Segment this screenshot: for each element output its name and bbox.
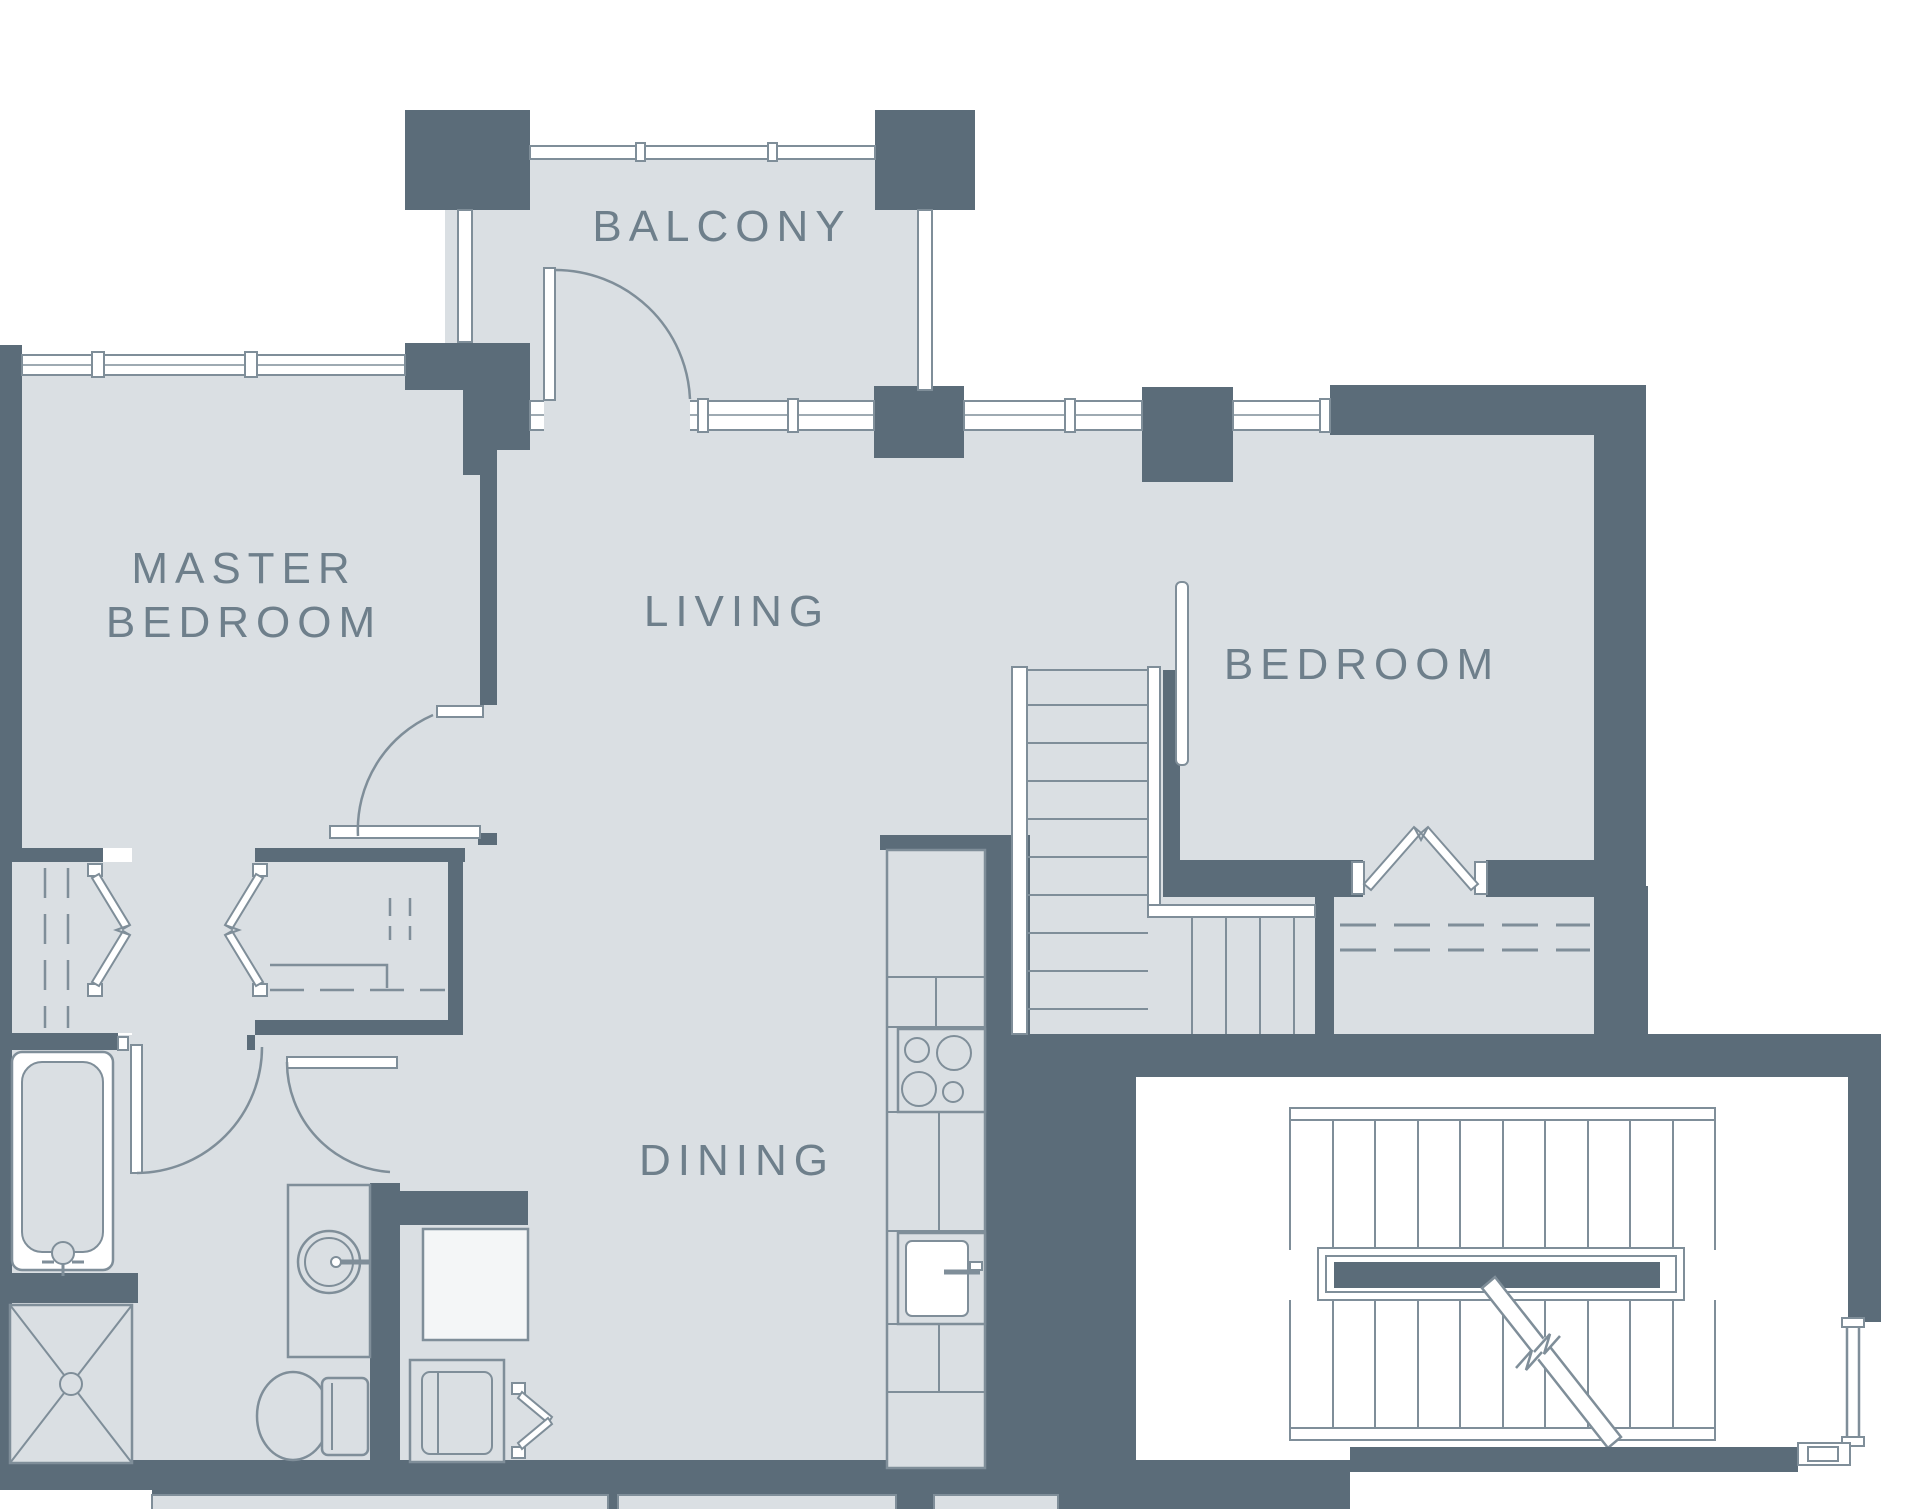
wall-under-closets [1030, 1034, 1881, 1077]
wall-walkin-top [255, 848, 465, 862]
master-track [330, 826, 480, 838]
column-master-corner [405, 343, 530, 390]
wall-bath-door-post-left [103, 1033, 118, 1050]
internal-stair-right-rail [1148, 667, 1160, 917]
balcony-door-opening [544, 399, 690, 432]
storage-box [423, 1229, 528, 1340]
kitchen [887, 850, 985, 1468]
stair-bottom-rail [1290, 1428, 1715, 1440]
window-mullion [1065, 399, 1075, 432]
wall-laundry-top [400, 1191, 528, 1225]
wall-linen-top [0, 848, 103, 862]
rail-mullion [636, 143, 645, 161]
rail-mullion [768, 143, 777, 161]
balcony-rail-left [458, 210, 472, 342]
wall-walkin-right [448, 848, 463, 1035]
internal-stair-lower-rail [1148, 905, 1315, 917]
common-stairwell [1136, 1077, 1848, 1448]
column-bedroom-top [1142, 387, 1233, 482]
door-leaf [544, 268, 555, 400]
master-bedroom-label-line1: MASTER [131, 544, 356, 593]
wall-step [463, 450, 480, 475]
dining-label: DINING [639, 1136, 835, 1185]
wall-master-left [0, 345, 22, 862]
vanity-sink [288, 1185, 370, 1357]
washer [410, 1360, 504, 1462]
window-mullion [92, 352, 104, 377]
column-living-top [874, 386, 964, 458]
wall-bedroom-bottom-left [1180, 860, 1363, 897]
walkin-closet-floor [267, 862, 448, 1020]
window-mullion [245, 352, 257, 377]
stair-guard-screen [1176, 582, 1188, 765]
window-mullion [1320, 399, 1330, 432]
column-master-corner-2 [463, 390, 530, 450]
exterior-gap [0, 1490, 152, 1509]
column-balcony-top-right [875, 110, 975, 210]
wall-wc-right [370, 1183, 400, 1463]
wall-stairwell-bottom [1350, 1447, 1798, 1472]
bathtub [12, 1052, 113, 1276]
toilet [257, 1372, 368, 1460]
door-jamb [118, 1037, 128, 1050]
door-leaf [131, 1045, 142, 1173]
cooktop [898, 1029, 985, 1112]
wall-linen-bottom [0, 1033, 103, 1050]
master-bedroom-label-line2: BEDROOM [106, 598, 382, 647]
window-mullion [698, 399, 708, 432]
wall-kitchen-top [880, 835, 1030, 850]
shower [10, 1305, 132, 1463]
floor-plan-drawing: BALCONY MASTER BEDROOM LIVING BEDROOM DI… [0, 0, 1920, 1509]
bedroom-label: BEDROOM [1224, 640, 1500, 689]
wall-bedroom-right [1594, 385, 1646, 886]
balcony-label: BALCONY [592, 202, 851, 251]
wall-tub-shower-divider [0, 1273, 138, 1303]
internal-stair-left-rail [1012, 667, 1027, 1034]
living-label: LIVING [644, 587, 830, 636]
window-mullion [788, 399, 798, 432]
column-balcony-top-left [405, 110, 530, 210]
wall-stairwell-right [1848, 1077, 1881, 1322]
kitchen-sink [898, 1233, 985, 1324]
door-leaf [287, 1057, 397, 1068]
wall-master-east [480, 450, 497, 705]
wall-walkin-bottom [255, 1020, 463, 1035]
wall-closet-left [1315, 897, 1334, 1034]
stair-top-rail [1290, 1108, 1715, 1120]
wall-bath-door-post-mid [247, 1035, 255, 1050]
kitchen-counter [887, 850, 985, 1468]
wall-bedroom-bottom-right [1486, 860, 1597, 897]
bifold-jamb [1352, 862, 1364, 894]
bifold-jamb [1475, 862, 1487, 894]
balcony-rail-top [530, 146, 875, 159]
floor-plan-page: BALCONY MASTER BEDROOM LIVING BEDROOM DI… [0, 0, 1920, 1509]
door-leaf [437, 706, 483, 717]
balcony-rail-right [918, 210, 932, 390]
wall-stairwell-left [1030, 1077, 1136, 1509]
